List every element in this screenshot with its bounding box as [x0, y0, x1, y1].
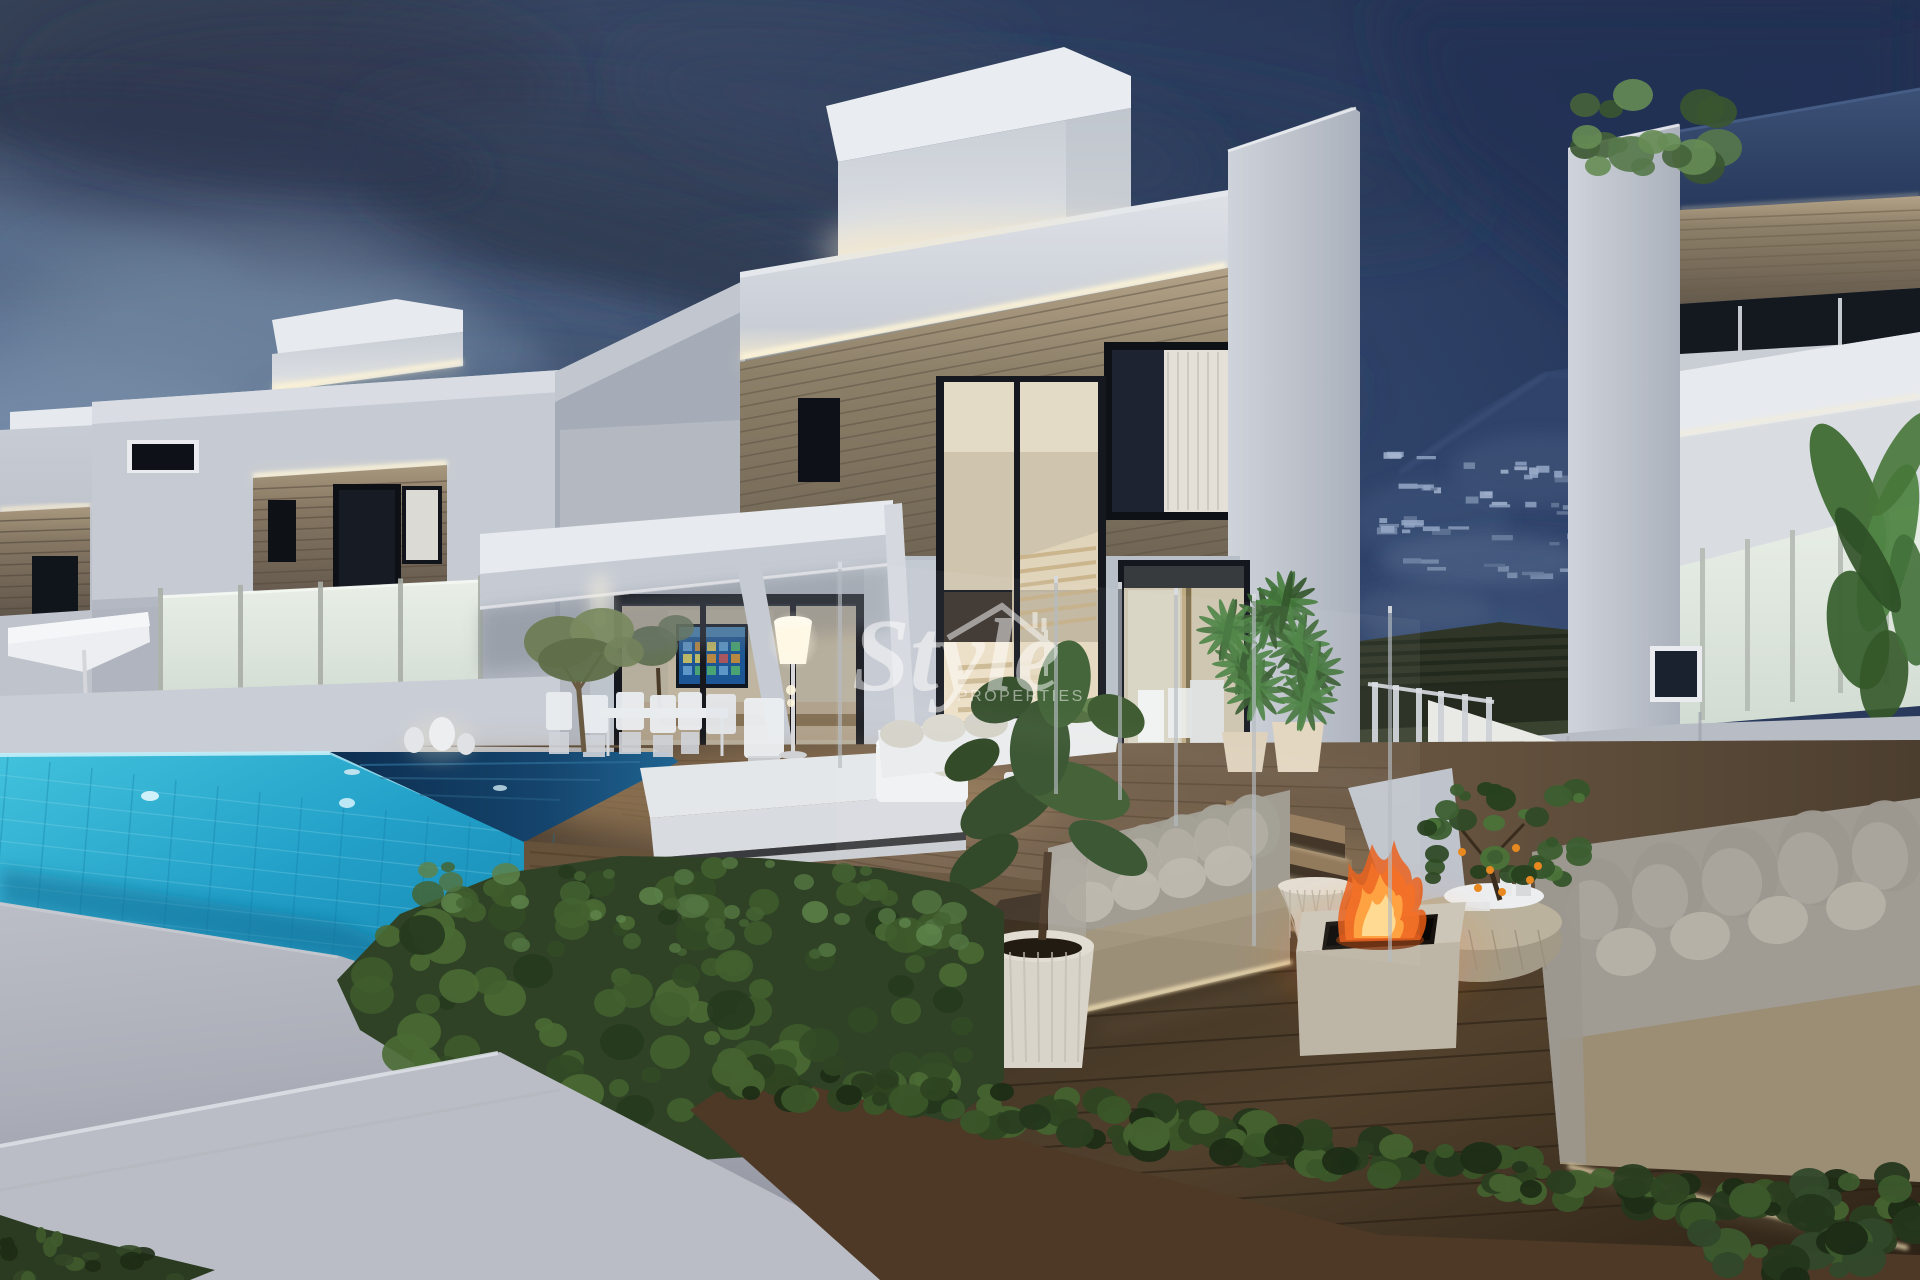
- svg-text:PROPERTIES: PROPERTIES: [957, 688, 1085, 705]
